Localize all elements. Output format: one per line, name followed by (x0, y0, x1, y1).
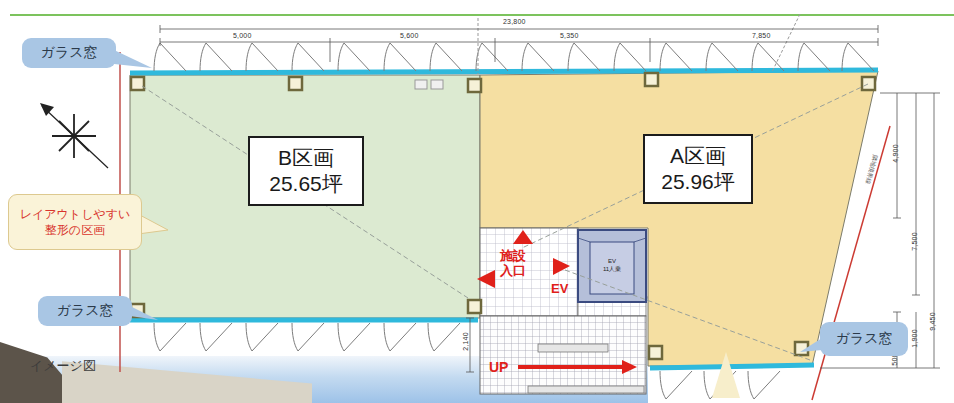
unit-label-b: B区画 25.65坪 (248, 136, 364, 206)
glass-line-top (130, 70, 878, 73)
unit-a-name: A区画 (670, 143, 726, 169)
unit-b-area: 25.65坪 (269, 171, 343, 197)
floor-plan-page: ガラス窓 ガラス窓 ガラス窓 レイアウトしやすい 整形の区画 B区画 25.65… (0, 0, 954, 403)
unit-label-a: A区画 25.96坪 (643, 134, 753, 204)
entrance-label: 施設 入口 (500, 249, 526, 279)
glass-line-a-bottom (650, 365, 814, 368)
floor-plan-drawing (0, 0, 954, 403)
image-caption: イメージ図 (30, 357, 96, 375)
entrance-line2: 入口 (500, 264, 526, 279)
callout-label: ガラス窓 (57, 302, 114, 320)
up-label: UP (489, 359, 508, 375)
callout-glass-window-top-left: ガラス窓 (22, 38, 116, 68)
callout-glass-window-bottom-left: ガラス窓 (38, 296, 132, 326)
note-line2: 整形の区画 (45, 222, 105, 238)
north-compass-icon (40, 103, 108, 168)
callout-glass-window-bottom-right: ガラス窓 (820, 322, 908, 356)
elevator-cab-label: EV 11人乗 (593, 258, 631, 274)
callout-label: ガラス窓 (41, 44, 98, 62)
stair-handrail (528, 386, 644, 393)
unit-b-name: B区画 (278, 145, 334, 171)
entrance-line1: 施設 (500, 249, 526, 264)
window-swing-symbols-b-bottom (154, 323, 460, 351)
stair-handrail (538, 344, 608, 352)
callout-label: ガラス窓 (836, 330, 893, 348)
corridor (578, 302, 646, 316)
window-swing-symbols-top (154, 43, 874, 71)
callout-layout-note: レイアウトしやすい 整形の区画 (8, 194, 142, 250)
unit-a-area: 25.96坪 (661, 169, 735, 195)
ev-label: EV (551, 281, 568, 296)
staircase (480, 316, 646, 394)
note-line1: レイアウトしやすい (20, 206, 131, 222)
